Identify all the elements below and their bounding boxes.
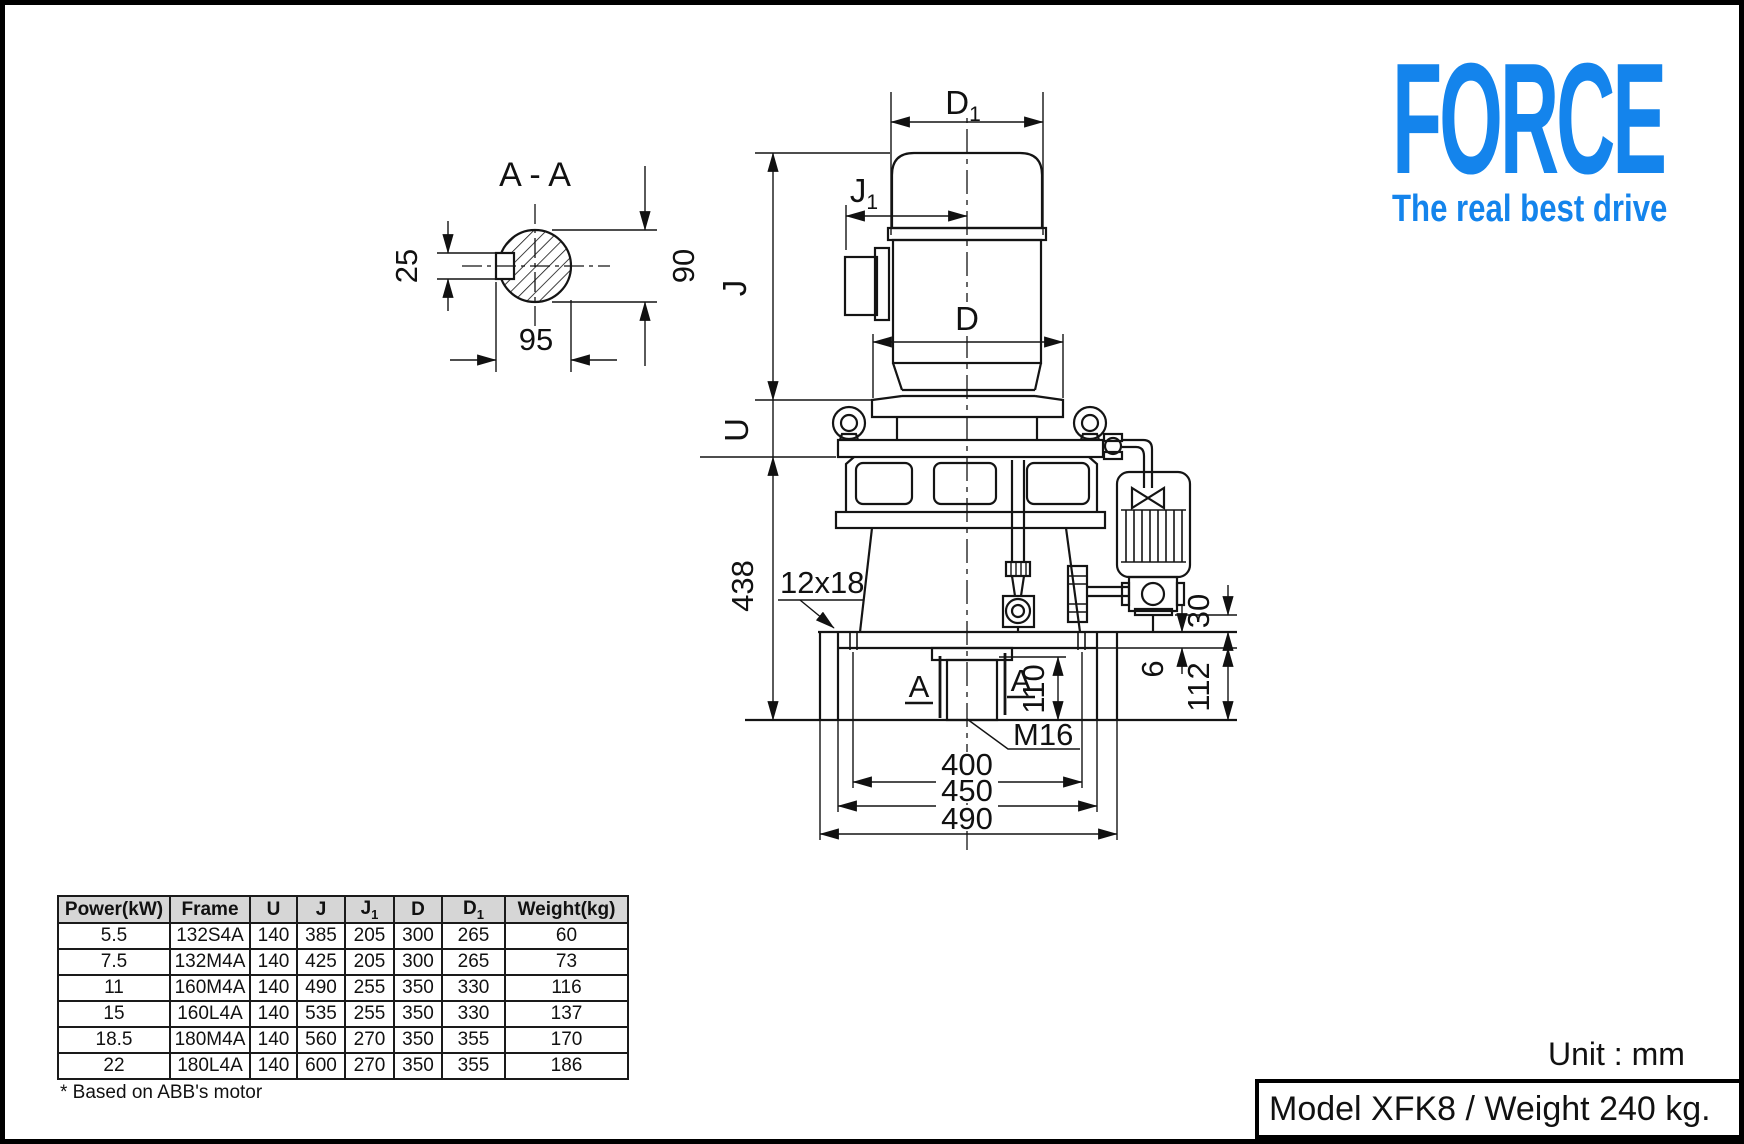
cell-power: 22 — [58, 1053, 170, 1079]
cut-plane-label-left: A — [909, 669, 930, 704]
dim-438-label: 438 — [725, 560, 760, 612]
cell-j: 535 — [297, 1001, 345, 1027]
cell-d1: 265 — [442, 949, 505, 975]
cell-d: 350 — [394, 975, 442, 1001]
cell-d1: 355 — [442, 1027, 505, 1053]
cell-j1: 255 — [345, 975, 394, 1001]
cell-frame: 180L4A — [170, 1053, 250, 1079]
cell-j: 385 — [297, 923, 345, 949]
table-row: 11 160M4A 140 490 255 350 330 116 — [58, 975, 628, 1001]
col-header-j1: J1 — [345, 896, 394, 923]
cell-j1: 255 — [345, 1001, 394, 1027]
table-row: 5.5 132S4A 140 385 205 300 265 60 — [58, 923, 628, 949]
dim-J-label: J — [716, 280, 753, 297]
brand-logo: FORCE — [1392, 40, 1548, 198]
table-header-row: Power(kW) Frame U J J1 D D1 Weight(kg) — [58, 896, 628, 923]
dim-90-label: 90 — [666, 249, 701, 283]
col-header-u: U — [250, 896, 297, 923]
cell-weight: 137 — [505, 1001, 628, 1027]
cell-power: 7.5 — [58, 949, 170, 975]
brand-block: FORCE The real best drive — [1392, 40, 1692, 198]
cell-weight: 60 — [505, 923, 628, 949]
cell-frame: 132S4A — [170, 923, 250, 949]
model-label: Model XFK8 / Weight 240 kg. — [1269, 1090, 1711, 1129]
cut-plane-label-right: A — [1011, 663, 1032, 698]
cell-d: 350 — [394, 1053, 442, 1079]
cell-weight: 73 — [505, 949, 628, 975]
cell-frame: 132M4A — [170, 949, 250, 975]
cell-u: 140 — [250, 923, 297, 949]
cell-u: 140 — [250, 1001, 297, 1027]
cell-j1: 270 — [345, 1027, 394, 1053]
dim-112-label: 112 — [1181, 662, 1216, 711]
dim-25-label: 25 — [389, 249, 424, 283]
cell-weight: 116 — [505, 975, 628, 1001]
dim-slot-label: 12x18 — [780, 565, 864, 600]
col-header-d: D — [394, 896, 442, 923]
cell-j: 425 — [297, 949, 345, 975]
col-header-frame: Frame — [170, 896, 250, 923]
cell-frame: 180M4A — [170, 1027, 250, 1053]
cell-j: 560 — [297, 1027, 345, 1053]
dim-J1-label: J1 — [850, 172, 878, 214]
dim-M16-label: M16 — [1013, 717, 1073, 752]
cell-d1: 355 — [442, 1053, 505, 1079]
cell-frame: 160L4A — [170, 1001, 250, 1027]
cell-d1: 330 — [442, 975, 505, 1001]
cell-j: 490 — [297, 975, 345, 1001]
main-view — [700, 86, 1237, 852]
spec-table: Power(kW) Frame U J J1 D D1 Weight(kg) 5… — [57, 895, 629, 1080]
unit-label: Unit : mm — [1548, 1036, 1685, 1073]
cell-d: 300 — [394, 923, 442, 949]
table-footnote: * Based on ABB's motor — [60, 1082, 262, 1104]
dim-6-label: 6 — [1135, 660, 1170, 677]
dim-490-label: 490 — [941, 801, 993, 836]
section-title: A - A — [499, 156, 571, 194]
brand-tagline: The real best drive — [1392, 188, 1667, 231]
cell-j1: 270 — [345, 1053, 394, 1079]
cell-u: 140 — [250, 1027, 297, 1053]
col-header-d1: D1 — [442, 896, 505, 923]
dim-U-label: U — [718, 418, 755, 442]
cell-u: 140 — [250, 949, 297, 975]
eyebolt-right — [1074, 407, 1106, 440]
cell-u: 140 — [250, 1053, 297, 1079]
cell-d: 350 — [394, 1001, 442, 1027]
cell-power: 15 — [58, 1001, 170, 1027]
cell-j1: 205 — [345, 923, 394, 949]
cell-power: 11 — [58, 975, 170, 1001]
dim-30-label: 30 — [1181, 594, 1216, 628]
table-row: 7.5 132M4A 140 425 205 300 265 73 — [58, 949, 628, 975]
cell-d: 300 — [394, 949, 442, 975]
table-row: 22 180L4A 140 600 270 350 355 186 — [58, 1053, 628, 1079]
cell-weight: 186 — [505, 1053, 628, 1079]
col-header-weight: Weight(kg) — [505, 896, 628, 923]
dimension-lines — [700, 92, 1237, 840]
cell-frame: 160M4A — [170, 975, 250, 1001]
dim-95-label: 95 — [519, 322, 553, 357]
dim-D-label: D — [955, 300, 979, 337]
gear-unit-outline — [833, 407, 1106, 632]
cell-d: 350 — [394, 1027, 442, 1053]
cell-j: 600 — [297, 1053, 345, 1079]
cell-d1: 265 — [442, 923, 505, 949]
cell-weight: 170 — [505, 1027, 628, 1053]
cell-d1: 330 — [442, 1001, 505, 1027]
table-row: 15 160L4A 140 535 255 350 330 137 — [58, 1001, 628, 1027]
cell-power: 5.5 — [58, 923, 170, 949]
col-header-power: Power(kW) — [58, 896, 170, 923]
oil-level-indicator — [1003, 460, 1034, 632]
eyebolt-left — [833, 407, 865, 440]
table-row: 18.5 180M4A 140 560 270 350 355 170 — [58, 1027, 628, 1053]
cell-j1: 205 — [345, 949, 394, 975]
cell-power: 18.5 — [58, 1027, 170, 1053]
model-title-box: Model XFK8 / Weight 240 kg. — [1255, 1079, 1744, 1139]
col-header-j: J — [297, 896, 345, 923]
cell-u: 140 — [250, 975, 297, 1001]
